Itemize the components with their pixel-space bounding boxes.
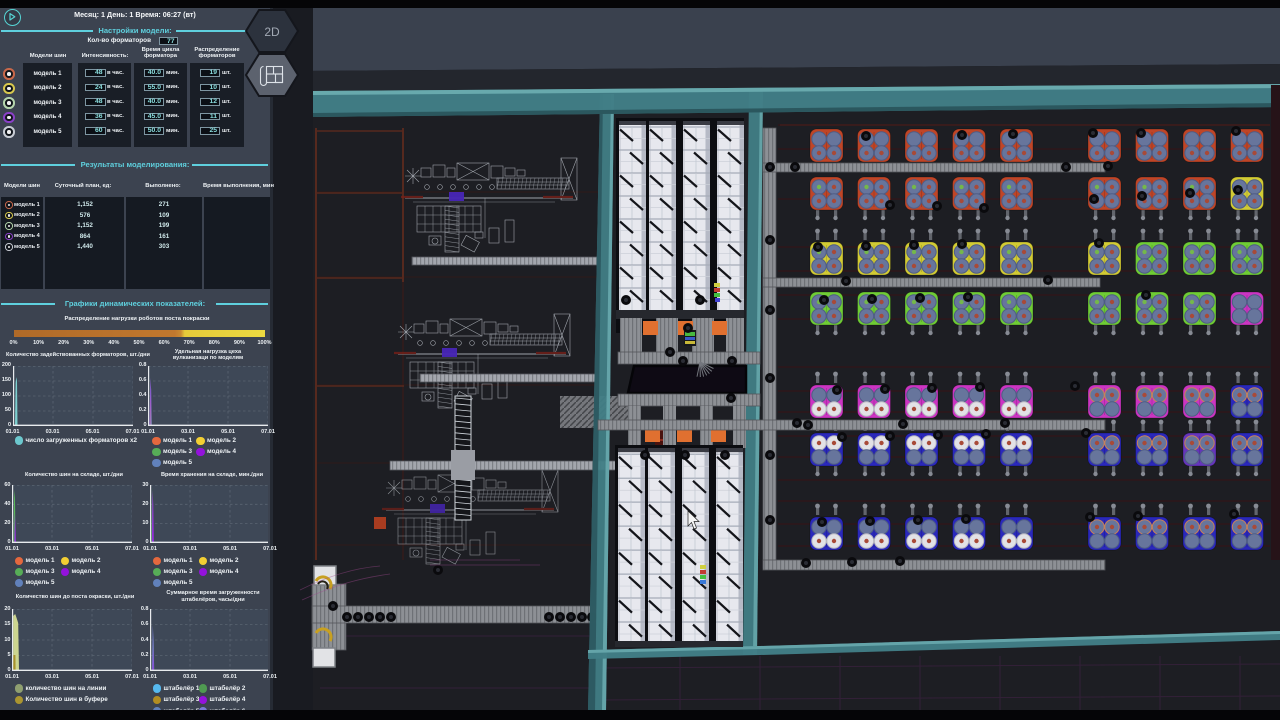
svg-text:2D: 2D: [264, 25, 280, 39]
